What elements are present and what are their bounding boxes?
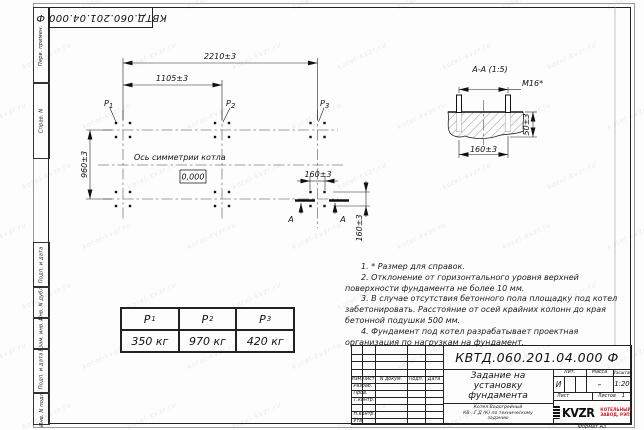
section-dim-50-text: 50±3 [522,114,531,136]
lit-label: Лит. [553,370,586,376]
doc-number: КВТД.060.201.04.000 Ф [443,346,631,369]
note-3: 3. В случае отсутствия бетонного пола пл… [345,294,621,326]
strip-cell-inv-podl: Инв. N подл. [33,392,50,425]
sheets-label: Листов [598,394,616,399]
row-utv: Утв. [352,418,377,424]
load-label-p2: P2 [223,99,236,122]
strip-cell-podp-data-2: Подп. и дата [33,348,50,394]
col-list: Лист [362,377,375,383]
col-izm: Изм. [352,377,362,383]
format-label: Формат А3 [552,423,632,430]
dim-160-v-text: 160±3 [355,214,364,241]
foundation-section [448,95,524,145]
loads-table-header-p2: P2 [179,308,237,330]
sheet-label: Лист [553,393,596,400]
plan-centerlines [98,110,345,228]
drawing-title: Задание на установку фундамента [443,369,553,403]
loads-table-value-p2: 970 кг [179,330,237,352]
company-name: КОТЕЛЬНЫЙ ЗАВОД, РЭП [600,407,631,417]
dim-2210-text: 2210±3 [204,52,236,61]
load-label-p1: P1 [104,99,116,122]
dim-1105-text: 1105±3 [156,74,188,83]
loads-table-header-p3: P3 [236,308,294,330]
col-ndocum: N докум. [375,377,407,383]
dim-160-horizontal: 160±3 [297,170,338,190]
kvzr-logo-text: KVZR [562,405,594,420]
dim-960-text: 960±3 [80,151,89,178]
dim-160-vertical: 160±3 [333,181,370,242]
thread-callout-m16: М16* [459,79,543,93]
dim-160-h-text: 160±3 [304,170,331,179]
loads-table-header-p1: P1 [121,308,179,330]
lit-value: И [553,376,564,392]
note-2: 2. Отклонение от горизонтального уровня … [345,273,621,295]
section-dim-160-text: 160±3 [470,145,497,154]
row-tkontr: Т.контр. [352,398,377,404]
dim-2210: 2210±3 [123,52,318,120]
mass-label: Масса [586,370,613,376]
loads-table-value-p1: 350 кг [121,330,179,352]
scale-value: 1:20 [613,376,631,392]
section-cut-marks: А А [287,201,349,225]
company-cell: KVZR КОТЕЛЬНЫЙ ЗАВОД, РЭП [553,400,631,424]
row-nkontr: Н.контр. [352,412,377,418]
kvzr-logo-icon [553,406,560,419]
row-prov: Пров. [352,391,377,397]
sheets-cell: Листов 1 [592,393,631,400]
anchor-bolt-left [457,95,462,113]
elevation-value: 0,000 [182,173,205,182]
svg-text:P1: P1 [104,99,113,110]
drawing-subtitle: Котел Водогрейный КВ-..Г,Д (К) по технич… [443,403,553,424]
mass-value: – [586,376,613,392]
svg-text:P2: P2 [226,99,236,110]
svg-text:P3: P3 [320,99,329,110]
section-letter-right: А [339,215,345,224]
thread-label: М16* [522,79,543,88]
dim-960: 960±3 [80,130,112,199]
loads-table-value-p3: 420 кг [236,330,294,352]
col-podp: Подп. [407,377,425,383]
section-view-title: А-А (1:5) [471,65,508,74]
drawing-sheet: { "page": { "format_label": "Формат А3",… [0,0,644,430]
row-razrab: Разраб. [352,384,377,390]
section-letter-left: А [287,215,293,224]
dim-1105: 1105±3 [123,74,222,120]
notes-block: 1. * Размер для справок. 2. Отклонение о… [345,262,621,348]
sheets-value: 1 [622,393,626,399]
loads-table: P1 P2 P3 350 кг 970 кг 420 кг [120,307,295,353]
scale-label: Масштаб [613,370,631,376]
load-label-p3: P3 [319,99,330,122]
title-block: Изм. Лист N докум. Подп. Дата Разраб. Пр… [351,345,632,425]
anchor-bolt-right [506,95,511,113]
col-data: Дата [425,377,443,383]
symmetry-axis-label: Ось симметрии котла [134,153,226,162]
note-1: 1. * Размер для справок. [345,262,621,273]
